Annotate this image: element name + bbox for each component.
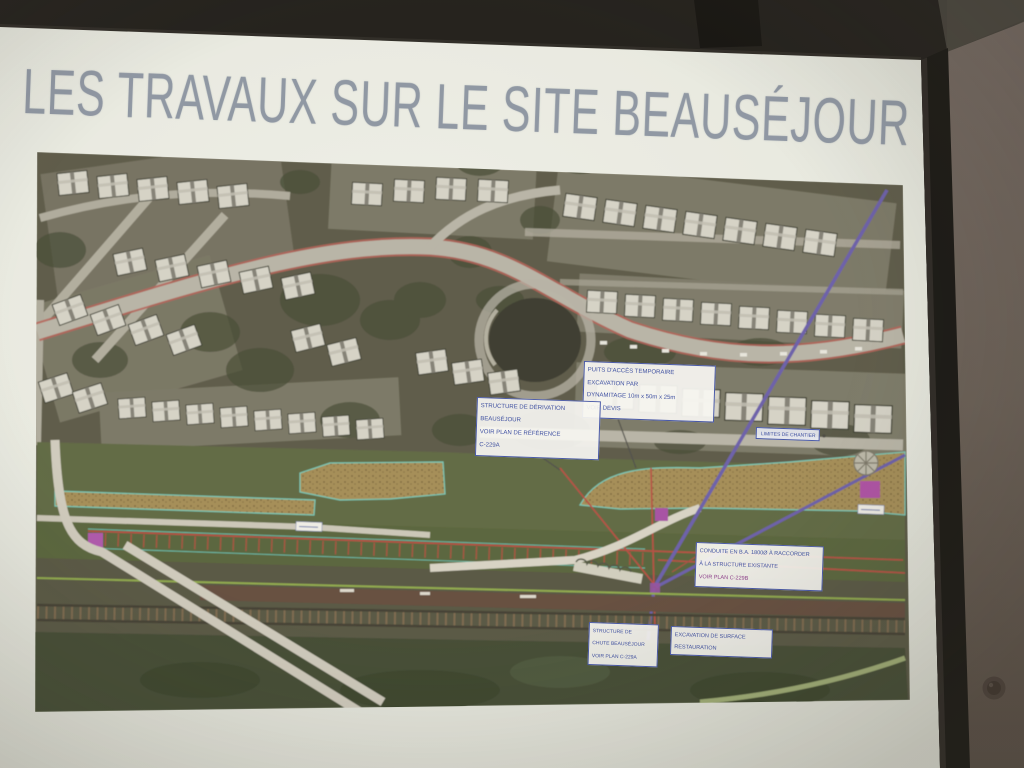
- label-site-limits: LIMITES DE CHANTIER: [756, 427, 820, 441]
- label-diversion-structure: STRUCTURE DE DÉRIVATION BEAUSÉJOUR VOIR …: [475, 397, 601, 460]
- site-map-image: [27, 141, 911, 712]
- label-line: RESTAURATION: [674, 641, 769, 656]
- photo-of-projection-screen: LES TRAVAUX SUR LE SITE BEAUSÉJOUR PUITS…: [0, 0, 1024, 768]
- label-surface-excavation: EXCAVATION DE SURFACE RESTAURATION: [670, 626, 773, 659]
- label-chute-structure: STRUCTURE DE CHUTE BEAUSÉJOUR VOIR PLAN …: [587, 622, 658, 667]
- label-conduit: CONDUITE EN B.A. 1800Ø À RACCORDER À LA …: [694, 542, 823, 591]
- wall-knob: [983, 677, 1006, 700]
- screen-bracket: [694, 0, 762, 48]
- label-access-shaft: PUITS D'ACCÈS TEMPORAIRE EXCAVATION PAR …: [582, 361, 716, 423]
- label-line: VOIR PLAN C-229A: [592, 650, 655, 665]
- label-line: C-229A: [479, 439, 596, 456]
